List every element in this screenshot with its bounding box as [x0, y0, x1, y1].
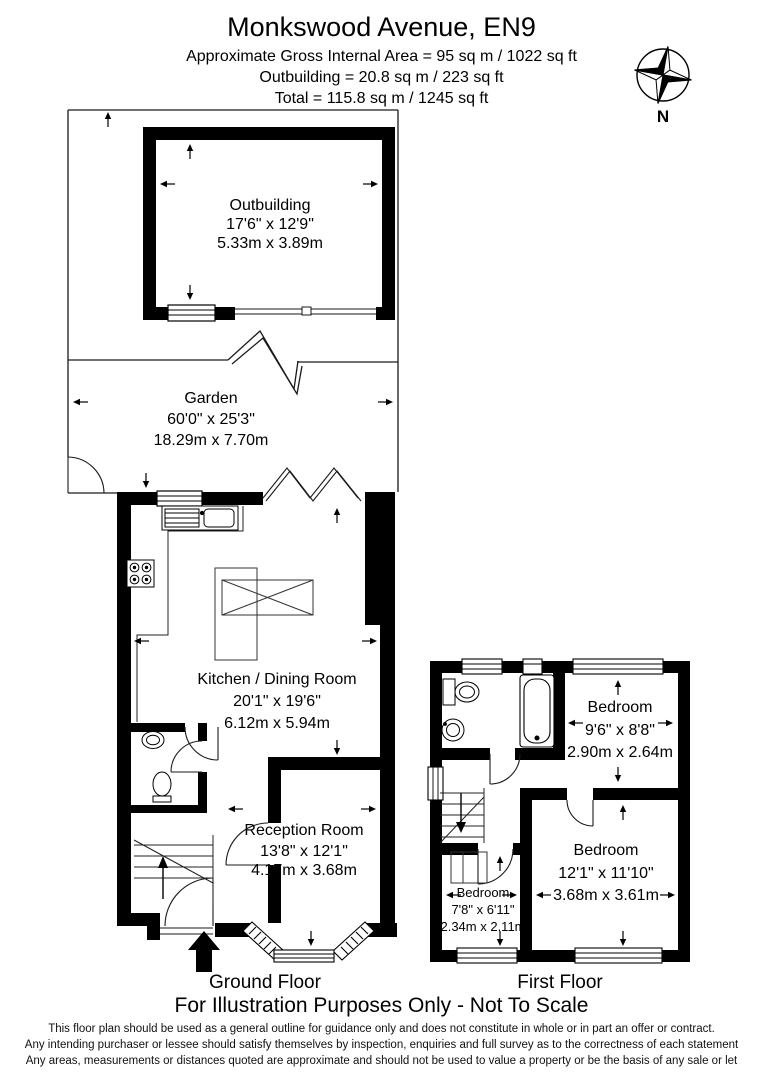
bedroom-small-metric: 2.34m x 2.11m: [440, 919, 525, 934]
bathroom-basin: [442, 719, 464, 741]
outbuilding-metric: 5.33m x 3.89m: [217, 235, 323, 252]
wc-basin: [142, 732, 164, 749]
bedroom-top-metric: 2.90m x 2.64m: [567, 744, 673, 761]
reception-label: Reception Room 13'8" x 12'1" 4.17m x 3.6…: [244, 822, 363, 879]
kitchen-window: [157, 491, 202, 506]
bedroom-small-imperial: 7'8" x 6'11": [451, 902, 514, 917]
garden-metric: 18.29m x 7.70m: [154, 432, 269, 449]
disclaimer-line-1: This floor plan should be used as a gene…: [0, 1023, 763, 1035]
kitchen-imperial: 20'1" x 19'6": [233, 693, 321, 710]
first-floor-label: First Floor: [460, 972, 660, 994]
kitchen-hob: [127, 560, 154, 587]
floorplan-canvas: N: [0, 0, 763, 1080]
garden-gate-door: [68, 457, 104, 493]
illustration-note: For Illustration Purposes Only - Not To …: [0, 994, 763, 1018]
disclaimer-line-3: Any areas, measurements or distances quo…: [0, 1055, 763, 1067]
bedroom-large-label: Bedroom 12'1" x 11'10" 3.68m x 3.61m: [553, 842, 659, 904]
kitchen-metric: 6.12m x 5.94m: [224, 715, 330, 732]
kitchen-counter: [137, 506, 243, 722]
garden-imperial: 60'0" x 25'3": [167, 411, 255, 428]
outbuilding-name: Outbuilding: [230, 197, 311, 214]
garden-name: Garden: [184, 390, 237, 407]
kitchen-name: Kitchen / Dining Room: [197, 671, 356, 688]
wardrobe: [451, 852, 487, 883]
disclaimer-line-2: Any intending purchaser or lessee should…: [0, 1039, 763, 1051]
entrance-arrow-icon: [188, 931, 220, 972]
reception-name: Reception Room: [244, 822, 363, 839]
reception-imperial: 13'8" x 12'1": [260, 843, 348, 860]
ground-floor-label: Ground Floor: [165, 972, 365, 994]
outbuilding-label: Outbuilding 17'6" x 12'9" 5.33m x 3.89m: [217, 197, 323, 252]
compass-north-label: N: [657, 107, 669, 126]
house-top-break-line: [263, 468, 361, 501]
bedroom-small-label: Bedroom 7'8" x 6'11" 2.34m x 2.11m: [440, 885, 525, 934]
garden-label: Garden 60'0" x 25'3" 18.29m x 7.70m: [154, 390, 269, 449]
first-floor-stairs: [440, 788, 484, 843]
bedroom-top-imperial: 9'6" x 8'8": [585, 722, 655, 739]
outbuilding-imperial: 17'6" x 12'9": [226, 216, 314, 233]
dining-table: [215, 568, 313, 660]
bedroom-large-metric: 3.68m x 3.61m: [553, 887, 659, 904]
bedroom-large-name: Bedroom: [574, 842, 639, 859]
reception-metric: 4.17m x 3.68m: [251, 862, 357, 879]
compass-rose-icon: N: [629, 41, 696, 126]
bathtub: [520, 675, 554, 747]
kitchen-sink: [162, 506, 238, 530]
wc-toilet: [153, 772, 171, 802]
bedroom-top-label: Bedroom 9'6" x 8'8" 2.90m x 2.64m: [567, 699, 673, 761]
outbuilding-window: [168, 305, 215, 321]
floorplan-page: Monkswood Avenue, EN9 Approximate Gross …: [0, 0, 763, 1080]
outbuilding-opening: [235, 307, 376, 315]
bay-window: [243, 922, 374, 962]
bedroom-small-name: Bedroom: [457, 885, 510, 900]
kitchen-label: Kitchen / Dining Room 20'1" x 19'6" 6.12…: [197, 671, 356, 732]
bathroom-toilet: [443, 679, 479, 705]
ground-floor-stairs: [134, 835, 213, 905]
bedroom-large-imperial: 12'1" x 11'10": [558, 865, 653, 882]
bedroom-top-name: Bedroom: [588, 699, 653, 716]
